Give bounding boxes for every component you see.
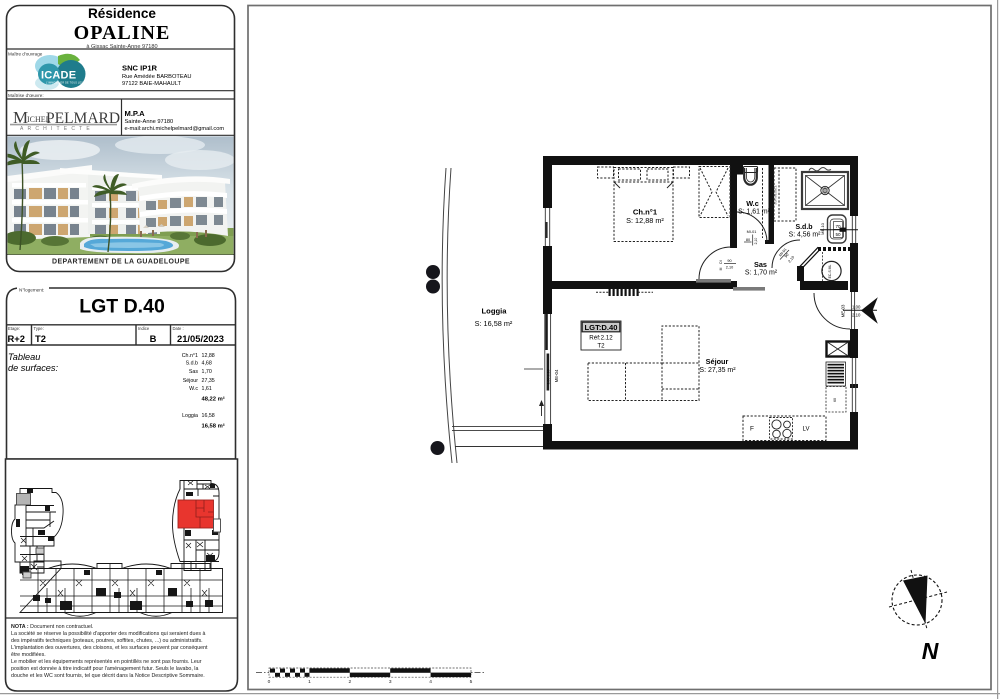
svg-text:position est donnée à titre in: position est donnée à titre indicatif po…: [11, 666, 198, 672]
svg-text:L'implantation des ouvertures,: L'implantation des ouvertures, des clois…: [11, 645, 208, 651]
svg-text:W.c: W.c: [189, 386, 198, 392]
svg-text:S: 27,35 m²: S: 27,35 m²: [699, 367, 736, 374]
svg-text:T2: T2: [35, 333, 46, 344]
svg-text:ICADE: ICADE: [41, 70, 76, 82]
svg-text:3: 3: [389, 679, 392, 685]
svg-text:Tableau: Tableau: [8, 352, 40, 362]
svg-text:Séjour: Séjour: [706, 357, 729, 366]
svg-text:EC-S ML: EC-S ML: [828, 265, 832, 279]
svg-text:97122 BAIE-MAHAULT: 97122 BAIE-MAHAULT: [122, 81, 182, 87]
svg-text:MI-01: MI-01: [747, 230, 757, 234]
svg-text:La société se réserve la possi: La société se réserve la possibilité d'a…: [11, 631, 206, 637]
svg-text:90: 90: [727, 259, 731, 263]
svg-text:LGT:D.40: LGT:D.40: [585, 323, 618, 332]
svg-text:4,68: 4,68: [202, 361, 212, 367]
svg-text:2,10: 2,10: [754, 238, 758, 245]
svg-text:21/05/2023: 21/05/2023: [177, 333, 224, 344]
svg-text:Loggia: Loggia: [182, 413, 198, 419]
svg-text:Résidence: Résidence: [88, 6, 156, 21]
svg-text:Etage:: Etage:: [8, 326, 20, 331]
svg-text:2,10: 2,10: [726, 266, 733, 270]
svg-text:Séjour: Séjour: [183, 378, 199, 384]
svg-text:S: 1,70 m²: S: 1,70 m²: [745, 270, 778, 277]
svg-text:60: 60: [833, 398, 837, 402]
svg-text:16,58 m²: 16,58 m²: [202, 423, 225, 430]
svg-text:être modifiées.: être modifiées.: [11, 652, 46, 658]
svg-text:L'IMMOBILIER DE TOUS LES FUTUR: L'IMMOBILIER DE TOUS LES FUTURS: [46, 82, 95, 85]
svg-text:5: 5: [470, 679, 473, 685]
svg-text:N: N: [922, 638, 939, 664]
svg-text:ARCHITECTE: ARCHITECTE: [20, 126, 94, 132]
svg-text:B: B: [150, 333, 157, 344]
svg-text:S.d.b: S.d.b: [795, 224, 812, 231]
svg-text:Indice: Indice: [138, 326, 150, 331]
svg-text:S: 16,58 m²: S: 16,58 m²: [475, 319, 513, 328]
svg-text:1,60 2,10: 1,60 2,10: [547, 370, 551, 385]
svg-text:Rue Amédée BARBOTEAU: Rue Amédée BARBOTEAU: [122, 74, 192, 80]
svg-text:N°logement:: N°logement:: [19, 288, 44, 293]
svg-text:NOTA : Document non contractue: NOTA : Document non contractuel.: [11, 624, 93, 630]
svg-text:48,22 m²: 48,22 m²: [202, 396, 225, 403]
svg-text:des impératifs techniques (pot: des impératifs techniques (poteaux, pout…: [11, 638, 203, 644]
svg-text:de surfaces:: de surfaces:: [8, 363, 58, 373]
svg-text:F: F: [750, 426, 754, 433]
svg-text:e-mail:archi.michelpelmard@gma: e-mail:archi.michelpelmard@gmail.com: [125, 126, 225, 132]
svg-text:ME-10: ME-10: [820, 222, 825, 235]
svg-text:LV: LV: [803, 427, 810, 433]
svg-text:Maîtrise d'œuvre:: Maîtrise d'œuvre:: [8, 93, 44, 98]
svg-text:27,35: 27,35: [202, 378, 215, 384]
svg-text:1,70: 1,70: [202, 369, 212, 375]
svg-text:ME-03: ME-03: [841, 304, 846, 317]
svg-text:50: 50: [835, 232, 841, 237]
svg-text:Le mobilier et les équipements: Le mobilier et les équipements représent…: [11, 659, 202, 665]
svg-text:Type:: Type:: [34, 326, 44, 331]
svg-text:1,61: 1,61: [202, 386, 212, 392]
svg-text:2,10: 2,10: [852, 313, 861, 318]
svg-text:16,58: 16,58: [202, 413, 215, 419]
svg-text:S.d.b: S.d.b: [186, 361, 198, 367]
svg-text:S: 1,61 m²: S: 1,61 m²: [738, 209, 770, 216]
svg-text:S: 12,88 m²: S: 12,88 m²: [626, 216, 664, 225]
svg-text:T2: T2: [597, 343, 605, 350]
svg-text:0: 0: [268, 679, 271, 685]
svg-text:2: 2: [348, 679, 351, 685]
svg-text:1,00: 1,00: [852, 305, 861, 310]
svg-text:12,88: 12,88: [202, 353, 215, 359]
svg-text:4: 4: [429, 679, 432, 685]
svg-text:ME-04: ME-04: [554, 369, 559, 382]
svg-text:DI: DI: [719, 260, 723, 263]
svg-text:Sas: Sas: [754, 260, 767, 269]
svg-text:Ch.n°1: Ch.n°1: [182, 353, 198, 359]
svg-text:Sainte-Anne 97180: Sainte-Anne 97180: [125, 119, 174, 125]
svg-text:douche et les WC sont fournis,: douche et les WC sont fournis, tel que d…: [11, 673, 205, 679]
svg-text:DEPARTEMENT DE LA GUADELOUPE: DEPARTEMENT DE LA GUADELOUPE: [52, 259, 190, 266]
svg-text:R+2: R+2: [8, 333, 25, 344]
svg-text:LGT D.40: LGT D.40: [79, 296, 165, 318]
svg-text:SNC IP1R: SNC IP1R: [122, 64, 158, 73]
svg-text:S: 4,56 m²: S: 4,56 m²: [789, 232, 821, 239]
svg-text:Date :: Date :: [173, 326, 184, 331]
svg-text:1: 1: [308, 679, 311, 685]
svg-text:80: 80: [746, 238, 750, 242]
svg-text:Loggia: Loggia: [482, 307, 508, 316]
svg-text:M: M: [719, 267, 723, 270]
svg-text:Maître d'ouvrage: Maître d'ouvrage: [8, 52, 43, 57]
svg-text:à Gissac Sainte-Anne 97180: à Gissac Sainte-Anne 97180: [86, 44, 157, 50]
svg-text:W.c: W.c: [746, 199, 759, 208]
svg-text:SUR MEUBLE: SUR MEUBLE: [774, 185, 778, 205]
svg-text:Sas: Sas: [189, 369, 198, 375]
svg-text:M.P.A: M.P.A: [125, 109, 146, 118]
svg-text:Réf:2.12: Réf:2.12: [589, 335, 613, 342]
svg-text:OPALINE: OPALINE: [74, 22, 171, 44]
